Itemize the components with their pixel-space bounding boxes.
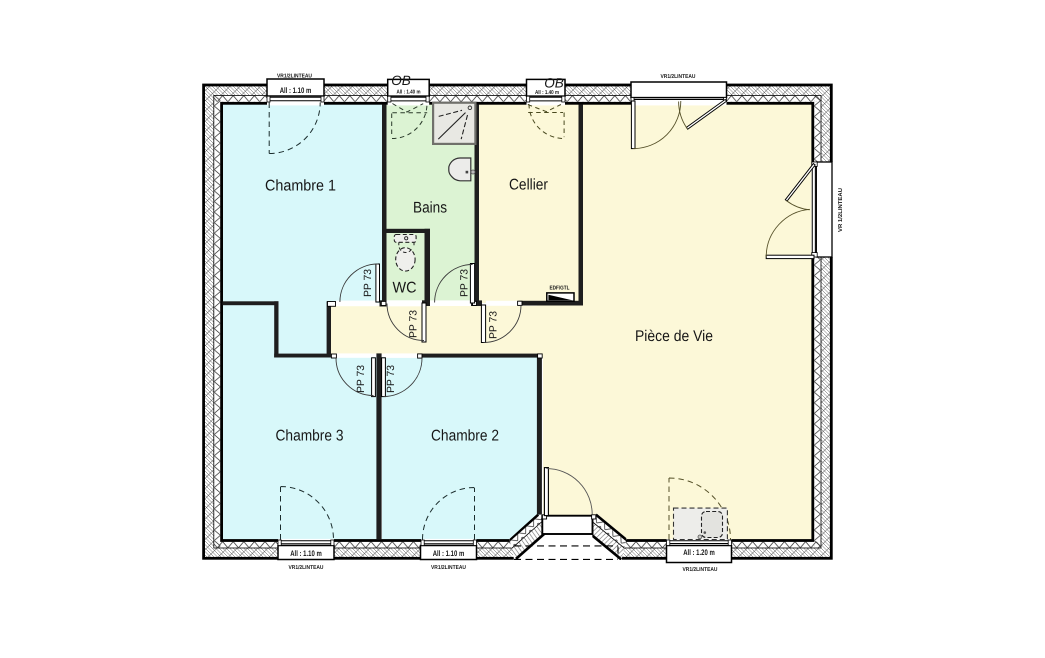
- svg-text:All : 1.10 m: All : 1.10 m: [280, 86, 312, 95]
- svg-text:PP 73: PP 73: [362, 269, 374, 297]
- svg-text:All : 1.40 m: All : 1.40 m: [535, 89, 559, 96]
- svg-text:PP 73: PP 73: [355, 365, 367, 393]
- svg-text:VR1/2LINTEAU: VR1/2LINTEAU: [683, 566, 718, 573]
- svg-text:VR1/2LINTEAU: VR1/2LINTEAU: [277, 73, 312, 80]
- svg-text:Bains: Bains: [413, 200, 447, 217]
- svg-text:EDF/GTL: EDF/GTL: [550, 284, 570, 291]
- svg-text:Chambre 2: Chambre 2: [431, 428, 499, 445]
- svg-text:All : 1.20 m: All : 1.20 m: [683, 548, 715, 557]
- svg-text:Cellier: Cellier: [509, 177, 548, 194]
- svg-text:All : 1.10 m: All : 1.10 m: [433, 549, 465, 558]
- svg-text:PP 73: PP 73: [488, 311, 500, 339]
- svg-text:PP 73: PP 73: [385, 365, 397, 393]
- svg-text:OB: OB: [391, 73, 411, 88]
- svg-text:PP 73: PP 73: [459, 269, 471, 297]
- svg-text:OB: OB: [544, 76, 564, 91]
- svg-text:PP 73: PP 73: [408, 310, 420, 338]
- svg-text:All : 1.40 m: All : 1.40 m: [397, 89, 421, 96]
- svg-text:VR 1/2LINTEAU: VR 1/2LINTEAU: [837, 188, 844, 232]
- svg-text:All : 1.10 m: All : 1.10 m: [290, 549, 322, 558]
- svg-text:Chambre 1: Chambre 1: [265, 178, 336, 195]
- svg-text:VR1/2LINTEAU: VR1/2LINTEAU: [431, 564, 466, 571]
- svg-text:VR1/2LINTEAU: VR1/2LINTEAU: [661, 73, 696, 80]
- svg-text:Pièce de Vie: Pièce de Vie: [635, 328, 713, 345]
- svg-text:VR1/2LINTEAU: VR1/2LINTEAU: [289, 564, 324, 571]
- svg-text:Chambre 3: Chambre 3: [276, 428, 344, 445]
- svg-text:WC: WC: [393, 280, 417, 297]
